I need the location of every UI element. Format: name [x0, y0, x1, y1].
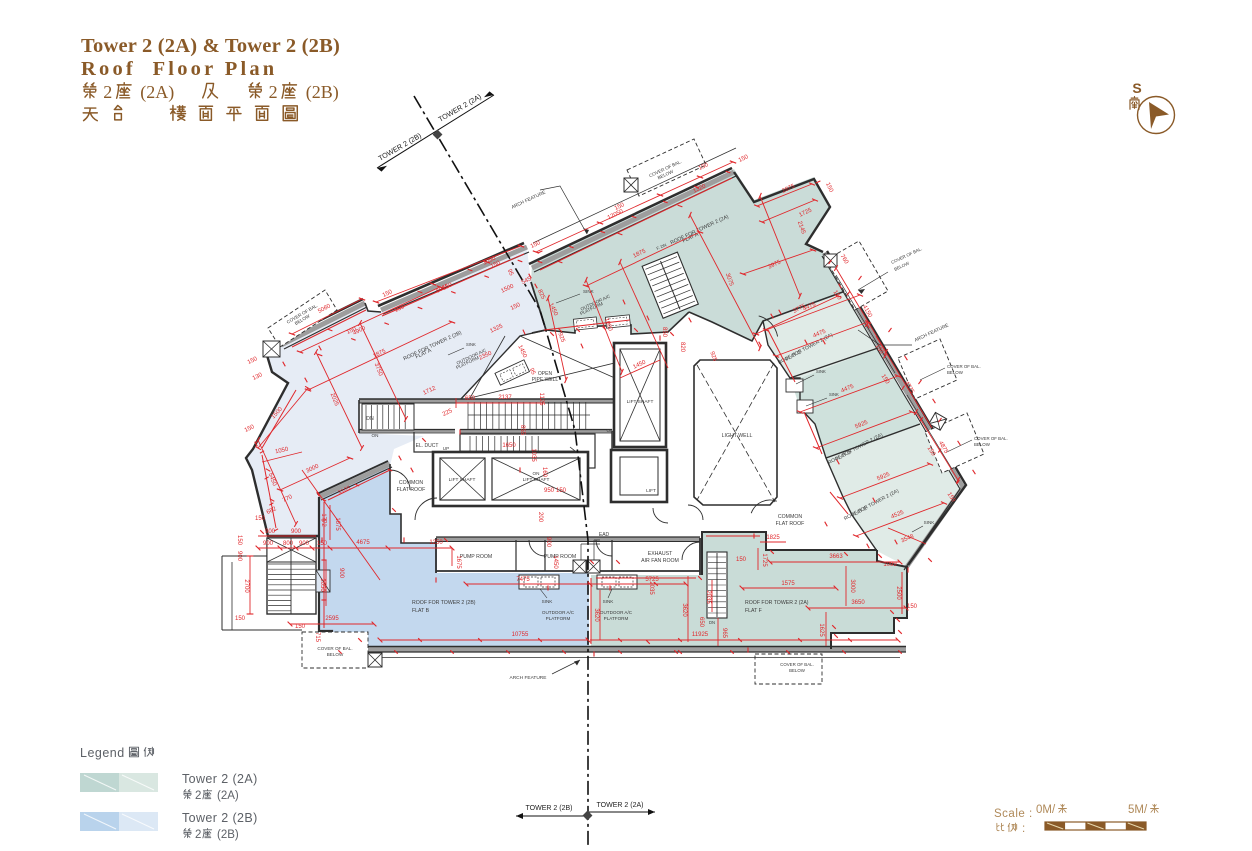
svg-text:COVER OF BAL.: COVER OF BAL. — [780, 662, 814, 667]
svg-text:160: 160 — [541, 467, 547, 478]
svg-text:900: 900 — [299, 541, 310, 547]
svg-text:715: 715 — [314, 632, 320, 643]
svg-text:FLAT B: FLAT B — [412, 608, 430, 614]
svg-text:820: 820 — [679, 342, 685, 353]
svg-text:LIGHT WELL: LIGHT WELL — [722, 433, 753, 439]
svg-text:2: 2 — [269, 82, 278, 102]
svg-text:4675: 4675 — [356, 540, 370, 546]
svg-text:LIFT SHAFT: LIFT SHAFT — [449, 477, 476, 483]
svg-text:SINK: SINK — [816, 369, 826, 374]
svg-text:SINK: SINK — [583, 289, 595, 294]
svg-text:DN: DN — [366, 416, 374, 422]
svg-text:1650: 1650 — [502, 443, 516, 449]
svg-text:Roof Floor Plan: Roof Floor Plan — [81, 58, 277, 80]
svg-text:FLAT ROOF: FLAT ROOF — [776, 521, 805, 527]
svg-text:965: 965 — [721, 628, 727, 639]
svg-text:BELOW: BELOW — [947, 370, 964, 375]
svg-text:(2B): (2B) — [306, 82, 339, 103]
svg-text:PIPE WELL: PIPE WELL — [532, 377, 559, 383]
svg-text:5M/: 5M/ — [1128, 804, 1148, 816]
svg-text:1125: 1125 — [538, 393, 544, 407]
svg-text:S: S — [1132, 80, 1141, 96]
svg-text:Scale :: Scale : — [994, 808, 1033, 820]
svg-text:1450: 1450 — [552, 555, 558, 569]
svg-text:150: 150 — [255, 516, 266, 522]
svg-text:COVER OF BAL.: COVER OF BAL. — [317, 646, 352, 651]
svg-text:1099: 1099 — [883, 562, 897, 568]
svg-text:900: 900 — [291, 529, 302, 535]
svg-text:800: 800 — [283, 541, 294, 547]
svg-text:SINK: SINK — [924, 520, 936, 525]
svg-text:BELOW: BELOW — [974, 442, 991, 447]
svg-text:2500: 2500 — [895, 586, 901, 600]
svg-text:ARCH FEATURE: ARCH FEATURE — [510, 675, 547, 681]
svg-text:2700: 2700 — [243, 579, 249, 593]
svg-text:ON: ON — [372, 433, 379, 438]
svg-text:2: 2 — [103, 82, 112, 102]
svg-text:(2B): (2B) — [217, 829, 239, 841]
svg-text:SINK: SINK — [466, 342, 476, 347]
svg-text:2035: 2035 — [648, 581, 654, 595]
svg-text:2137: 2137 — [498, 395, 512, 401]
svg-text:Tower 2 (2A): Tower 2 (2A) — [182, 772, 258, 786]
svg-text:855: 855 — [519, 425, 525, 436]
svg-text:150: 150 — [907, 604, 918, 610]
svg-text:1725: 1725 — [761, 553, 767, 567]
svg-text:1250: 1250 — [429, 540, 443, 546]
svg-text:7475: 7475 — [516, 577, 530, 583]
svg-text:(2A): (2A) — [217, 790, 239, 802]
svg-text:3620: 3620 — [593, 608, 599, 622]
svg-text:900: 900 — [263, 541, 274, 547]
svg-text:Tower 2 (2B): Tower 2 (2B) — [182, 811, 258, 825]
svg-text:3663: 3663 — [829, 554, 843, 560]
svg-text:TOWER 2 (2B): TOWER 2 (2B) — [526, 805, 573, 812]
svg-text:150: 150 — [235, 616, 246, 622]
svg-text:1675: 1675 — [455, 555, 461, 569]
svg-text:(2A): (2A) — [140, 82, 174, 103]
svg-text:850: 850 — [661, 327, 667, 338]
svg-text:ROOF FOR TOWER 2 (2A): ROOF FOR TOWER 2 (2A) — [745, 600, 809, 606]
svg-text:ON: ON — [607, 428, 614, 433]
svg-text::: : — [1022, 823, 1025, 835]
svg-text:SINK: SINK — [829, 392, 839, 397]
svg-text:10755: 10755 — [512, 632, 529, 638]
svg-text:ON: ON — [533, 471, 540, 476]
svg-text:OUTDOOR A/C: OUTDOOR A/C — [600, 610, 633, 615]
svg-text:650: 650 — [698, 617, 704, 628]
svg-text:COVER OF BAL.: COVER OF BAL. — [974, 436, 1008, 441]
svg-text:200: 200 — [537, 512, 543, 523]
svg-text:SINK: SINK — [542, 599, 554, 604]
svg-text:AIR FAN ROOM: AIR FAN ROOM — [641, 558, 679, 564]
svg-text:1625: 1625 — [818, 623, 824, 637]
svg-text:650: 650 — [465, 396, 476, 402]
svg-text:950: 950 — [544, 488, 555, 494]
svg-text:PUMP ROOM: PUMP ROOM — [544, 554, 576, 560]
svg-text:2: 2 — [195, 829, 201, 841]
svg-text:900: 900 — [265, 529, 276, 535]
svg-text:3650: 3650 — [851, 600, 865, 606]
svg-text:900: 900 — [545, 537, 551, 548]
svg-text:COMMON: COMMON — [778, 514, 802, 520]
svg-text:2595: 2595 — [325, 616, 339, 622]
svg-text:2035: 2035 — [705, 590, 711, 604]
svg-text:BELOW: BELOW — [789, 668, 806, 673]
svg-text:11925: 11925 — [692, 632, 709, 638]
svg-text:PUMP ROOM: PUMP ROOM — [460, 554, 492, 560]
svg-text:EAD: EAD — [599, 532, 610, 538]
svg-text:1035: 1035 — [530, 448, 536, 462]
svg-text:OUTDOOR A/C: OUTDOOR A/C — [542, 610, 575, 615]
svg-text:900: 900 — [338, 568, 344, 579]
svg-text:TOWER 2 (2A): TOWER 2 (2A) — [597, 802, 644, 809]
svg-text:0M/: 0M/ — [1036, 804, 1056, 816]
svg-text:UP: UP — [443, 446, 449, 451]
svg-text:PLATFORM: PLATFORM — [604, 616, 629, 621]
svg-text:150: 150 — [295, 624, 306, 630]
svg-text:EXHAUST: EXHAUST — [648, 551, 673, 557]
svg-text:3620: 3620 — [681, 603, 687, 617]
svg-text:1675: 1675 — [334, 517, 340, 531]
svg-text:Legend: Legend — [80, 746, 125, 760]
svg-text:150: 150 — [556, 488, 567, 494]
svg-text:LIFT SHAFT: LIFT SHAFT — [627, 399, 654, 405]
svg-text:2: 2 — [195, 790, 201, 802]
svg-text:150: 150 — [236, 535, 242, 546]
svg-text:SINK: SINK — [603, 599, 615, 604]
svg-text:LIFT SHAFT: LIFT SHAFT — [523, 477, 550, 483]
svg-text:1575: 1575 — [781, 581, 795, 587]
svg-text:900: 900 — [236, 551, 242, 562]
svg-text:DN: DN — [709, 620, 715, 625]
svg-text:PLATFORM: PLATFORM — [546, 616, 571, 621]
svg-text:COVER OF BAL.: COVER OF BAL. — [947, 364, 981, 369]
svg-text:3000: 3000 — [849, 579, 855, 593]
svg-text:1825: 1825 — [766, 535, 780, 541]
svg-text:Tower 2 (2A) & Tower 2 (2B): Tower 2 (2A) & Tower 2 (2B) — [81, 35, 340, 57]
svg-text:FLAT F: FLAT F — [745, 608, 762, 614]
svg-text:150: 150 — [736, 557, 747, 563]
svg-text:ROOF FOR TOWER 2 (2B): ROOF FOR TOWER 2 (2B) — [412, 600, 476, 606]
svg-text:LIFT: LIFT — [646, 488, 656, 494]
